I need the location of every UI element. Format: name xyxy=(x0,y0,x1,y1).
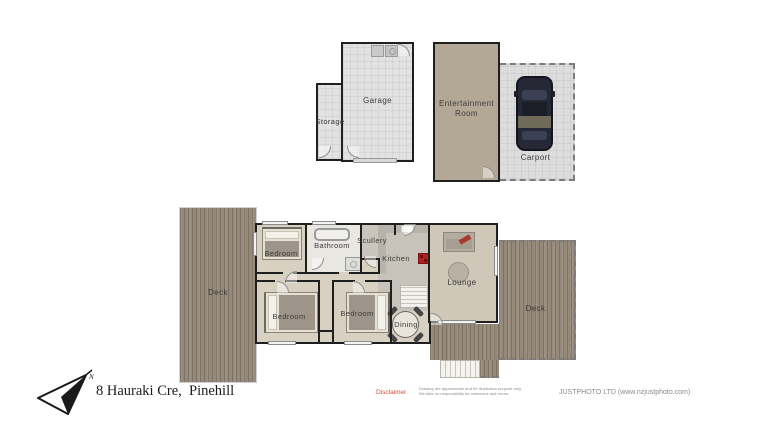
carport-label: Carport xyxy=(500,153,571,162)
garage-label: Garage xyxy=(341,96,414,105)
disclaimer-text: Drawing are approximate and for illustra… xyxy=(419,387,522,397)
carport-area: Carport xyxy=(500,63,575,181)
company-credit: JUSTPHOTO LTD (www.nzjustphoto.com) xyxy=(559,389,690,396)
disclaimer-line-2: We take no responsibility for omissions … xyxy=(419,392,522,397)
floor-plan-page: Garage Storage Entertainment Room Carpor… xyxy=(0,0,768,432)
deck-right: Deck xyxy=(499,240,576,360)
entertainment-room-label: Entertainment Room xyxy=(435,99,498,120)
wall-segment xyxy=(334,280,355,282)
laundry-appliance xyxy=(371,45,384,57)
deck-left: Deck xyxy=(180,208,256,382)
lounge-room: Lounge xyxy=(428,223,498,323)
car-roof xyxy=(522,102,547,116)
car-mirror-left xyxy=(514,91,518,97)
car-mirror-right xyxy=(551,91,555,97)
wall-segment xyxy=(318,280,320,344)
car-midband xyxy=(518,116,551,128)
sliding-door xyxy=(438,320,476,324)
address-title: 8 Hauraki Cre, Pinehill xyxy=(96,383,234,400)
bedroom-mid-label: Bedroom xyxy=(331,309,383,318)
window xyxy=(344,341,372,345)
deck-steps xyxy=(440,360,480,378)
burner-icon xyxy=(420,255,423,258)
disclaimer-label: Disclaimer xyxy=(376,389,406,396)
north-arrow-icon: N xyxy=(34,368,98,420)
wall-segment xyxy=(318,330,334,332)
wall-segment xyxy=(394,225,396,235)
wall-segment xyxy=(293,272,339,274)
deck-bottom xyxy=(430,324,499,360)
bedroom-left-label: Bedroom xyxy=(263,312,315,321)
deck-left-label: Deck xyxy=(180,288,256,297)
north-label: N xyxy=(88,373,94,381)
couch xyxy=(443,232,475,252)
window xyxy=(262,221,288,225)
car-rear-window xyxy=(522,131,547,140)
shower xyxy=(345,257,361,271)
deck-bottom-strip xyxy=(480,360,499,378)
window xyxy=(253,232,257,256)
bathtub xyxy=(314,228,350,241)
wall-segment xyxy=(257,280,275,282)
storage-label: Storage xyxy=(304,117,356,126)
wall-segment xyxy=(390,280,392,344)
washer-appliance xyxy=(385,45,398,57)
washer-door-icon xyxy=(389,48,396,55)
shower-drain-icon xyxy=(350,261,357,268)
wall-segment xyxy=(349,272,378,274)
car-windshield xyxy=(522,90,547,100)
burner-icon xyxy=(424,259,427,262)
car xyxy=(516,76,553,151)
window xyxy=(494,246,498,276)
lounge-label: Lounge xyxy=(430,278,494,287)
window xyxy=(268,341,296,345)
kitchen-label: Kitchen xyxy=(376,254,416,263)
wall-segment xyxy=(257,272,283,274)
bed-pillow xyxy=(265,231,299,239)
window xyxy=(312,221,336,225)
garage-door-opening xyxy=(353,158,397,163)
deck-right-label: Deck xyxy=(499,304,572,313)
stairs xyxy=(400,285,428,308)
entertainment-room: Entertainment Room xyxy=(433,42,500,182)
bedroom-top-label: Bedroom xyxy=(255,249,307,258)
wall-segment xyxy=(365,280,392,282)
scullery-label: Scullery xyxy=(349,236,395,245)
dining-label: Dining xyxy=(380,320,432,329)
